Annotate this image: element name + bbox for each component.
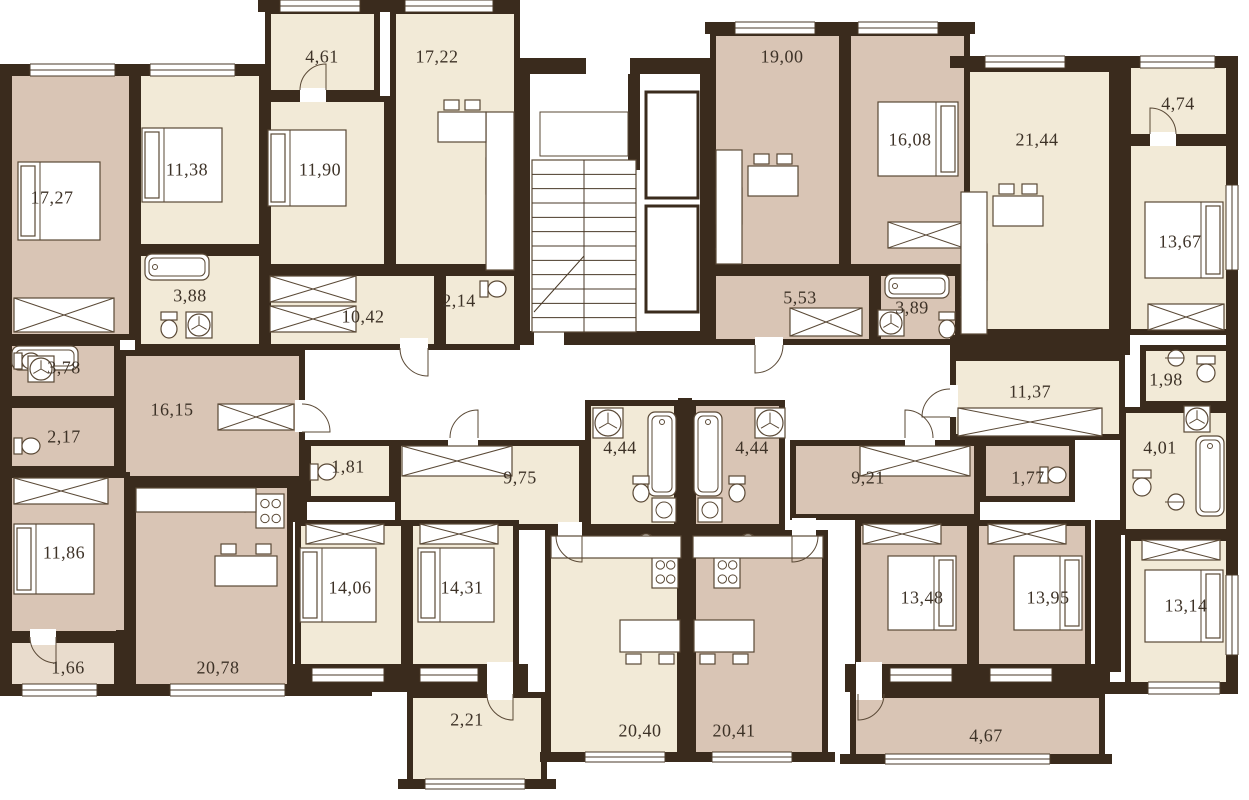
- room-area-label: 9,21: [851, 468, 885, 489]
- wall-segment: [0, 64, 265, 76]
- wall-segment: [630, 58, 714, 74]
- wall-segment: [705, 22, 975, 34]
- wall-segment: [516, 58, 586, 74]
- room-area-label: 1,66: [51, 658, 85, 679]
- wall-segment: [116, 630, 132, 692]
- room-area-label: 16,15: [151, 400, 194, 421]
- room-area-label: 13,14: [1165, 596, 1208, 617]
- wall-segment: [950, 335, 1130, 355]
- wall-segment: [1226, 56, 1238, 694]
- room-area-label: 20,40: [619, 721, 662, 742]
- wall-segment: [516, 331, 534, 345]
- room-area-label: 4,74: [1161, 94, 1195, 115]
- door-opening: [944, 385, 958, 417]
- bath-4-44-left: [585, 400, 680, 530]
- door-opening: [755, 337, 783, 353]
- room-area-label: 1,81: [331, 457, 365, 478]
- wall-segment: [0, 64, 12, 692]
- room-area-label: 19,00: [761, 47, 804, 68]
- door-opening: [487, 662, 513, 700]
- floor-plan: 4,6117,2219,0016,0821,444,7417,2711,3811…: [0, 0, 1249, 800]
- door-opening: [558, 522, 582, 538]
- door-opening: [856, 662, 882, 700]
- room-area-label: 11,90: [299, 160, 341, 181]
- wall-segment: [1113, 62, 1127, 335]
- room-area-label: 5,53: [783, 288, 817, 309]
- door-opening: [400, 338, 428, 354]
- room-area-label: 2,21: [450, 710, 484, 731]
- room-area-label: 21,44: [1016, 130, 1059, 151]
- stair-break-line: [534, 256, 584, 312]
- room-area-label: 11,38: [166, 160, 208, 181]
- room-area-label: 14,06: [329, 578, 372, 599]
- room-area-label: 20,41: [713, 721, 756, 742]
- room-area-label: 3,78: [47, 358, 81, 379]
- door-opening: [295, 400, 309, 432]
- door-opening: [792, 518, 816, 538]
- bath-4-01: [1120, 407, 1232, 535]
- door-opening: [1150, 132, 1176, 146]
- door-opening: [30, 629, 56, 645]
- room-area-label: 17,22: [416, 47, 459, 68]
- stair-landing: [540, 112, 628, 156]
- kitchen-21-44: [955, 66, 1115, 335]
- wall-segment: [258, 0, 520, 12]
- room-area-label: 4,44: [603, 438, 637, 459]
- elevator-shaft: [646, 92, 698, 198]
- room-area-label: 4,44: [735, 438, 769, 459]
- room-area-label: 13,95: [1027, 588, 1070, 609]
- room-area-label: 17,27: [31, 188, 74, 209]
- hall-16-15: [120, 350, 305, 482]
- room-area-label: 1,98: [1149, 370, 1183, 391]
- room-area-label: 2,14: [442, 291, 476, 312]
- room-area-label: 4,01: [1143, 438, 1177, 459]
- wall-segment: [678, 398, 692, 758]
- door-opening: [905, 432, 935, 448]
- room-area-label: 2,17: [47, 427, 81, 448]
- wall-segment: [564, 331, 714, 345]
- kitchen-20-41: [690, 530, 828, 758]
- room-area-label: 20,78: [197, 658, 240, 679]
- door-opening: [448, 432, 478, 448]
- wall-segment: [1098, 682, 1238, 694]
- wall-segment: [845, 664, 1110, 692]
- room-area-label: 14,31: [441, 578, 484, 599]
- staircase-icon: [532, 160, 636, 332]
- wall-segment: [1095, 520, 1121, 672]
- room-11-90: [265, 96, 390, 270]
- elevator-shaft: [646, 206, 698, 312]
- room-area-label: 11,37: [1009, 382, 1051, 403]
- kitchen-20-40: [545, 530, 683, 758]
- wall-segment: [950, 56, 1235, 68]
- balcony-2-21: [407, 692, 547, 787]
- wall-segment: [700, 58, 714, 345]
- wall-segment: [398, 779, 556, 789]
- room-area-label: 11,86: [43, 543, 85, 564]
- door-opening: [300, 88, 326, 102]
- room-area-label: 13,67: [1159, 232, 1202, 253]
- room-area-label: 4,61: [305, 47, 339, 68]
- corridor-9-75: [395, 440, 585, 530]
- wall-segment: [516, 58, 530, 345]
- wall-segment: [840, 754, 1112, 764]
- room-area-label: 3,88: [173, 286, 207, 307]
- room-area-label: 13,48: [901, 588, 944, 609]
- bath-4-44-right: [690, 400, 785, 530]
- wall-segment: [628, 74, 640, 170]
- room-area-label: 1,77: [1011, 468, 1045, 489]
- room-area-label: 4,67: [969, 726, 1003, 747]
- room-area-label: 9,75: [503, 468, 537, 489]
- room-area-label: 10,42: [342, 307, 385, 328]
- room-area-label: 3,89: [895, 298, 929, 319]
- room-area-label: 16,08: [889, 130, 932, 151]
- corridor-9-21: [790, 440, 980, 520]
- wall-segment: [293, 482, 307, 522]
